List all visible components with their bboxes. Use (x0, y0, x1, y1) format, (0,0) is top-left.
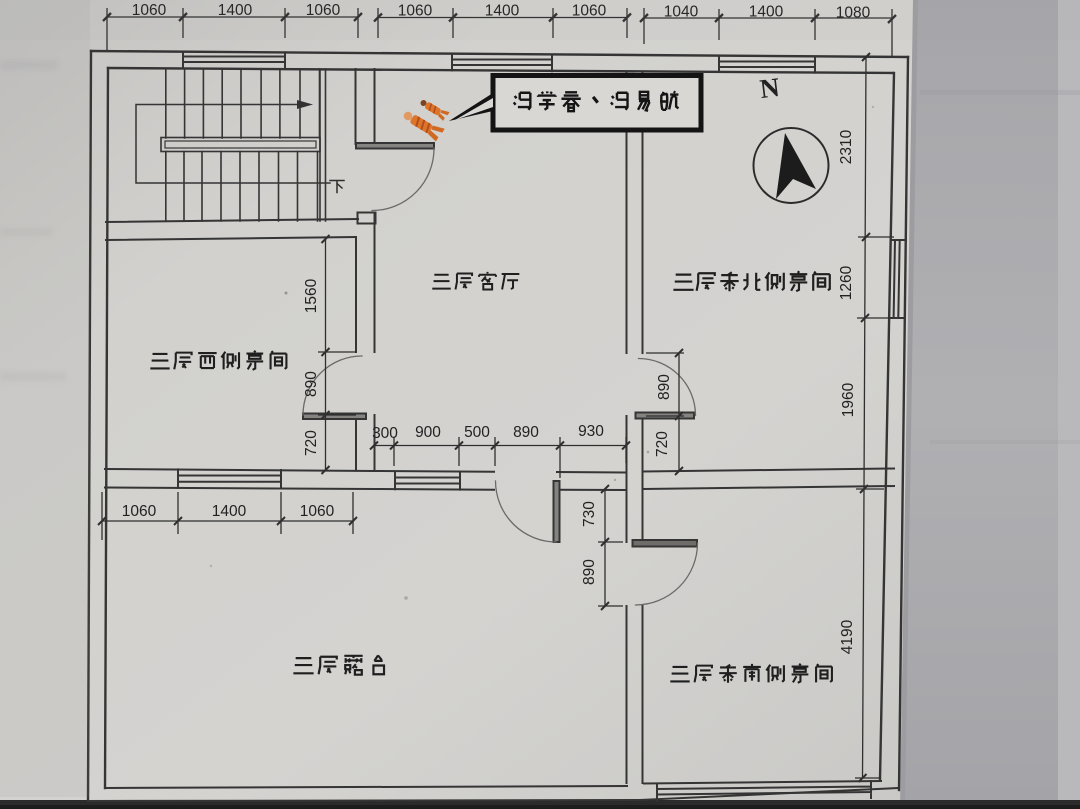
svg-text:890: 890 (581, 559, 598, 585)
svg-text:1400: 1400 (212, 503, 247, 520)
svg-text:1260: 1260 (838, 265, 855, 300)
svg-text:500: 500 (464, 424, 490, 441)
svg-text:900: 900 (415, 424, 441, 441)
svg-text:890: 890 (656, 374, 673, 400)
svg-text:2310: 2310 (838, 129, 855, 164)
svg-text:4190: 4190 (839, 619, 856, 654)
svg-text:890: 890 (303, 371, 320, 397)
svg-text:300: 300 (372, 425, 398, 442)
svg-text:930: 930 (578, 423, 604, 440)
svg-text:890: 890 (513, 424, 539, 441)
svg-text:730: 730 (581, 501, 598, 527)
svg-text:720: 720 (654, 431, 671, 457)
svg-text:720: 720 (303, 430, 320, 456)
svg-text:1060: 1060 (122, 503, 157, 520)
svg-text:1560: 1560 (303, 278, 320, 313)
svg-text:1960: 1960 (840, 382, 857, 417)
svg-text:1060: 1060 (300, 503, 335, 520)
